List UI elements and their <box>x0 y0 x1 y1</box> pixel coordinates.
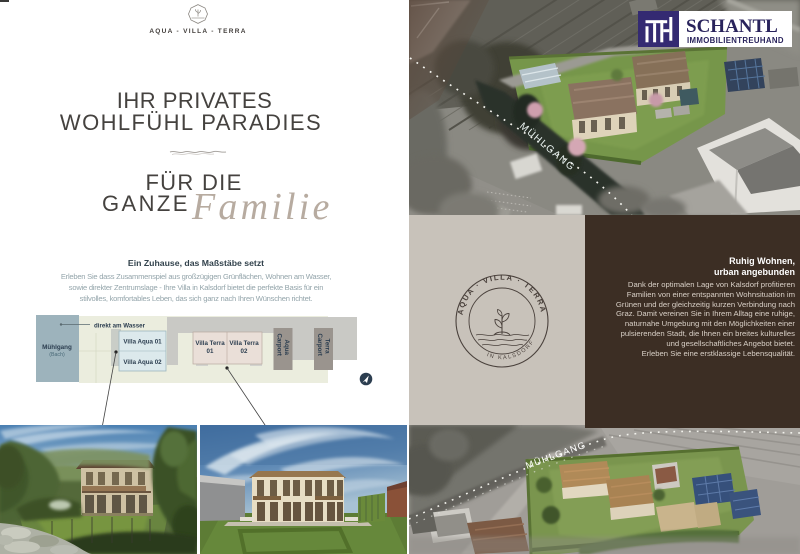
svg-text:AQUA · VILLA · TERRA: AQUA · VILLA · TERRA <box>456 273 548 316</box>
svg-text:Villa Terra: Villa Terra <box>229 340 259 347</box>
svg-text:Villa Aqua 02: Villa Aqua 02 <box>123 359 162 366</box>
svg-text:Aqua: Aqua <box>283 340 290 356</box>
svg-text:direkt am Wasser: direkt am Wasser <box>94 323 146 330</box>
svg-text:02: 02 <box>241 348 248 355</box>
svg-text:IN KALSDORF: IN KALSDORF <box>486 339 536 361</box>
svg-text:Terra: Terra <box>324 339 331 355</box>
svg-text:01: 01 <box>207 348 214 355</box>
svg-text:Carport: Carport <box>316 334 323 356</box>
svg-text:Villa Terra: Villa Terra <box>195 340 225 347</box>
svg-text:Mühlgang: Mühlgang <box>42 344 72 351</box>
svg-text:Carport: Carport <box>276 334 283 356</box>
svg-text:(Bach): (Bach) <box>49 352 65 358</box>
svg-text:Villa Aqua 01: Villa Aqua 01 <box>123 339 162 346</box>
